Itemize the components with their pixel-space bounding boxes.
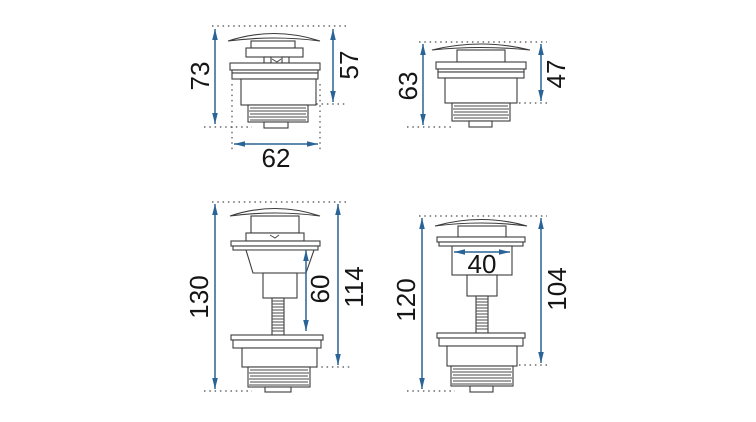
lower-flange-band-1 xyxy=(231,335,323,340)
cap-collar xyxy=(246,48,303,57)
threaded-rod xyxy=(476,296,488,333)
guide-block xyxy=(263,273,297,298)
dim-label-body-height: 47 xyxy=(541,60,571,89)
cap-stem xyxy=(457,50,505,62)
thread-section xyxy=(451,366,513,386)
dim-label-body-width: 62 xyxy=(262,143,291,173)
flange-band-3 xyxy=(232,73,318,79)
center-mark xyxy=(272,59,281,62)
dim-label-body-height: 104 xyxy=(542,267,572,310)
drain-fitting-flat-cap-short xyxy=(432,44,530,127)
dim-label-body-height: 57 xyxy=(334,51,364,80)
lower-body xyxy=(242,348,317,367)
drawing-top-left: 73 57 62 xyxy=(185,26,364,173)
dim-label-stem-length: 60 xyxy=(305,275,335,304)
thread-section xyxy=(452,103,510,121)
drain-fitting-flat-cap-long xyxy=(435,220,527,393)
lower-flange-band-2 xyxy=(439,338,523,346)
drawing-bottom-right: 120 40 104 xyxy=(391,216,572,392)
drawing-top-right: 63 47 xyxy=(393,42,571,127)
cap-stem xyxy=(251,216,299,233)
threaded-rod xyxy=(272,298,284,335)
cap-collar xyxy=(246,233,304,241)
thread-section xyxy=(248,105,308,122)
neck-right xyxy=(282,57,289,63)
bottom-tab xyxy=(470,386,493,392)
bottom-tab xyxy=(265,387,291,392)
flange-band-3 xyxy=(438,72,524,78)
cap-dome xyxy=(228,34,320,42)
top-flange-band-1 xyxy=(437,237,525,242)
lower-body xyxy=(447,346,517,366)
lower-flange-band-1 xyxy=(437,333,525,338)
dim-label-total-height: 73 xyxy=(185,62,215,91)
cap-stem xyxy=(251,41,295,48)
top-flange-band-2 xyxy=(439,242,523,246)
cap-dome xyxy=(432,44,530,50)
top-flange-band-1 xyxy=(231,241,320,246)
tapered-body xyxy=(246,250,314,273)
top-flange-band-2 xyxy=(233,246,318,250)
dim-label-total-height: 130 xyxy=(184,275,214,318)
dim-label-cap-stem-width: 40 xyxy=(468,249,497,279)
bottom-tab xyxy=(264,122,288,128)
drawing-bottom-left: 130 60 114 xyxy=(184,202,369,392)
dim-label-body-height: 114 xyxy=(339,266,369,307)
cap-dome xyxy=(435,220,527,227)
cap-dome xyxy=(230,209,320,217)
body xyxy=(445,78,517,103)
technical-drawing-sheet: 73 57 62 63 47 xyxy=(0,0,756,422)
bottom-tab xyxy=(469,121,492,127)
flange-band-1 xyxy=(436,62,526,69)
drain-fitting-tall-cap-short xyxy=(228,34,320,129)
thread-section xyxy=(248,367,310,387)
body xyxy=(241,79,316,105)
flange-band-1 xyxy=(230,63,320,70)
dim-label-total-height: 63 xyxy=(393,72,423,101)
dim-label-total-height: 120 xyxy=(391,278,421,321)
lower-flange-band-2 xyxy=(233,340,321,348)
cap-stem xyxy=(458,226,506,237)
neck-left xyxy=(264,57,271,63)
drain-plug-dimension-drawing: 73 57 62 63 47 xyxy=(0,0,756,422)
